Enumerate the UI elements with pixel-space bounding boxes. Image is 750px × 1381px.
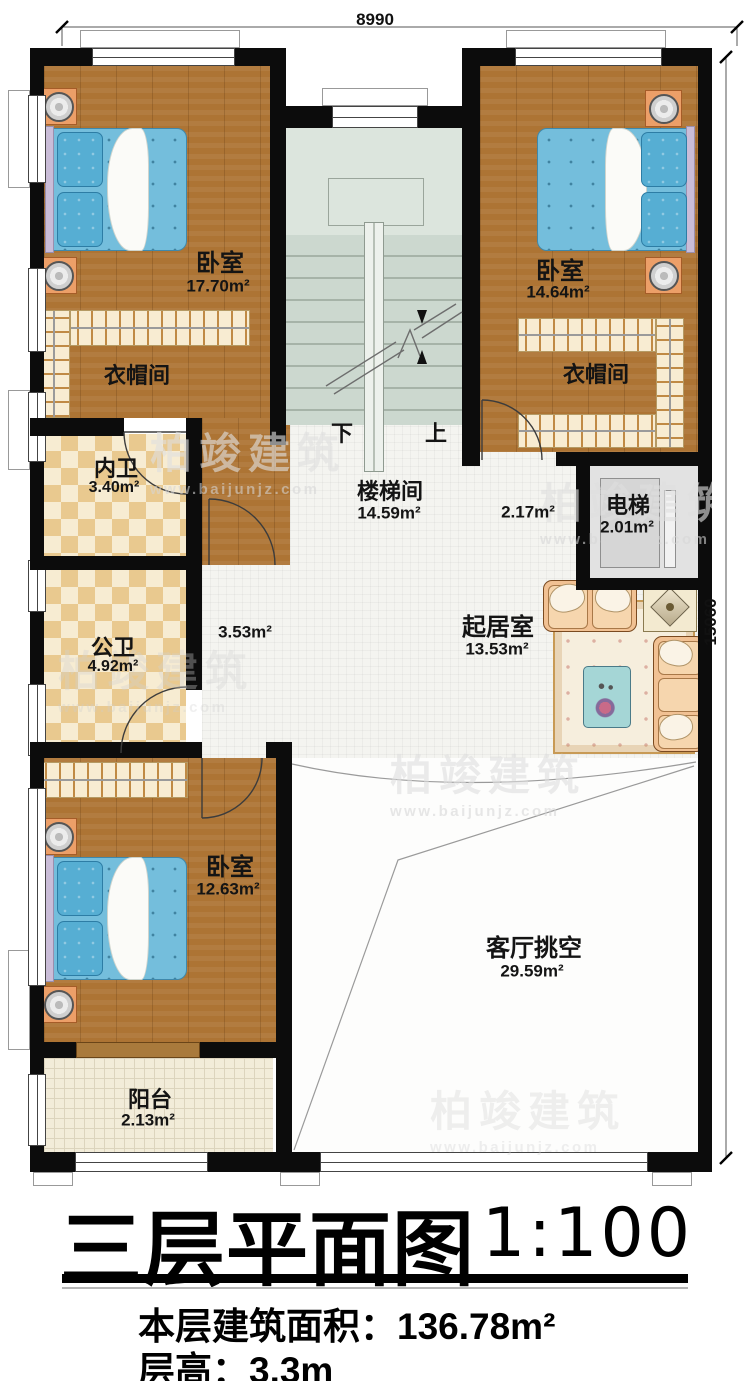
- floor-area-value: 136.78m²: [397, 1306, 555, 1347]
- room-label-stairwell: 楼梯间: [357, 481, 423, 503]
- pillow: [57, 921, 103, 976]
- floor-plan-page: 柏竣建筑 www.baijunjz.com 柏竣建筑 www.baijunjz.…: [0, 0, 750, 1381]
- nightstand: [40, 986, 77, 1023]
- room-area-bedroom-b: 12.63m²: [196, 881, 259, 898]
- nightstand: [645, 257, 682, 294]
- room-label-bedroom-tr: 卧室: [536, 260, 584, 284]
- lamp-icon: [649, 261, 679, 291]
- blanket: [107, 857, 149, 980]
- wall: [186, 570, 202, 690]
- wall: [556, 452, 698, 466]
- title-rule-thin: [62, 1287, 688, 1289]
- plan-title: 三层平面图: [60, 1183, 475, 1302]
- room-area-bath-public: 4.92m²: [88, 659, 139, 675]
- window: [75, 1152, 208, 1172]
- wall: [30, 1152, 75, 1172]
- window-sill: [322, 88, 428, 106]
- window-sill: [8, 390, 30, 470]
- wall: [648, 1152, 712, 1172]
- room-area-elevator: 2.01m²: [600, 519, 654, 536]
- room-area-bedroom-tl: 17.70m²: [186, 278, 249, 295]
- wall: [44, 1042, 76, 1058]
- wall: [270, 48, 286, 445]
- pillow: [57, 132, 103, 187]
- room-label-void: 客厅挑空: [486, 937, 582, 961]
- room-label-balcony: 阳台: [128, 1089, 172, 1111]
- wall: [30, 556, 202, 570]
- bed: [533, 126, 695, 253]
- lamp-icon: [44, 822, 74, 852]
- coffee-table: [583, 666, 631, 728]
- window: [28, 95, 46, 183]
- pillow: [641, 132, 687, 187]
- wardrobe: [38, 762, 188, 798]
- room-label-bedroom-b: 卧室: [206, 856, 254, 880]
- lamp-icon: [44, 261, 74, 291]
- window: [92, 48, 235, 66]
- window-sill: [8, 950, 30, 1050]
- wall: [30, 742, 202, 758]
- bed: [45, 126, 187, 253]
- pillow: [57, 861, 103, 916]
- title-rule: [62, 1274, 688, 1283]
- window: [28, 788, 46, 986]
- wall: [576, 466, 590, 578]
- lamp-icon: [44, 990, 74, 1020]
- wall: [462, 48, 480, 466]
- wardrobe: [518, 414, 656, 448]
- dimension-top: 8990: [356, 10, 394, 30]
- stair-well-outline: [328, 178, 424, 226]
- nightstand: [645, 90, 682, 127]
- floor-height-line: 层高：3.3m: [138, 1340, 333, 1381]
- pillow: [641, 192, 687, 247]
- wall: [418, 106, 462, 128]
- headboard: [45, 126, 54, 253]
- dimension-right: 15060: [701, 598, 721, 645]
- room-area-stairwell: 14.59m²: [357, 505, 420, 522]
- lamp-icon: [649, 94, 679, 124]
- wall: [208, 1152, 320, 1172]
- hall-area-b: 3.53m²: [218, 624, 272, 641]
- table-lamp-dot: [666, 603, 674, 611]
- window-sill: [8, 90, 30, 188]
- hall-area-a: 2.17m²: [501, 504, 555, 521]
- window: [28, 1074, 46, 1146]
- wall: [286, 106, 332, 128]
- room-label-living: 起居室: [462, 616, 534, 640]
- window: [515, 48, 662, 66]
- room-label-bath-public: 公卫: [91, 637, 135, 659]
- sofa-cushion: [658, 678, 702, 712]
- headboard: [45, 855, 54, 982]
- room-area-void: 29.59m²: [500, 963, 563, 980]
- wall: [200, 1042, 276, 1058]
- lamp-icon: [44, 92, 74, 122]
- stair-down-label: 下: [331, 423, 353, 445]
- room-area-bedroom-tr: 14.64m²: [526, 284, 589, 301]
- wardrobe: [70, 310, 250, 346]
- window: [28, 268, 46, 352]
- sofa-set: [543, 578, 705, 756]
- floor-height-value: 3.3m: [249, 1350, 333, 1381]
- headboard: [686, 126, 695, 253]
- elevator-door: [664, 490, 676, 568]
- wardrobe: [656, 318, 684, 448]
- stair-rail: [364, 222, 384, 472]
- wall: [576, 578, 698, 590]
- window-sill: [80, 30, 240, 48]
- room-label-bath-inner: 内卫: [94, 458, 138, 480]
- window: [332, 106, 418, 128]
- wall: [480, 48, 515, 66]
- sliding-door: [76, 1042, 200, 1058]
- pillow: [57, 192, 103, 247]
- room-label-elevator: 电梯: [606, 495, 650, 517]
- room-area-bath-inner: 3.40m²: [89, 480, 140, 496]
- plan-scale: 1:100: [482, 1194, 693, 1273]
- wall: [30, 418, 124, 436]
- room-area-balcony: 2.13m²: [121, 1112, 175, 1129]
- wall: [276, 742, 292, 1172]
- wardrobe: [518, 318, 656, 352]
- blanket: [107, 128, 149, 251]
- room-area-living: 13.53m²: [465, 641, 528, 658]
- room-label-closet-r: 衣帽间: [563, 364, 629, 386]
- window: [320, 1152, 648, 1172]
- room-label-bedroom-tl: 卧室: [196, 252, 244, 276]
- window-sill: [506, 30, 666, 48]
- floor-height-label: 层高：: [138, 1350, 249, 1381]
- window-sill: [652, 1172, 692, 1186]
- stair-up-label: 上: [425, 423, 447, 445]
- room-label-closet-l: 衣帽间: [104, 365, 170, 387]
- wall: [186, 418, 202, 570]
- bed: [45, 855, 187, 982]
